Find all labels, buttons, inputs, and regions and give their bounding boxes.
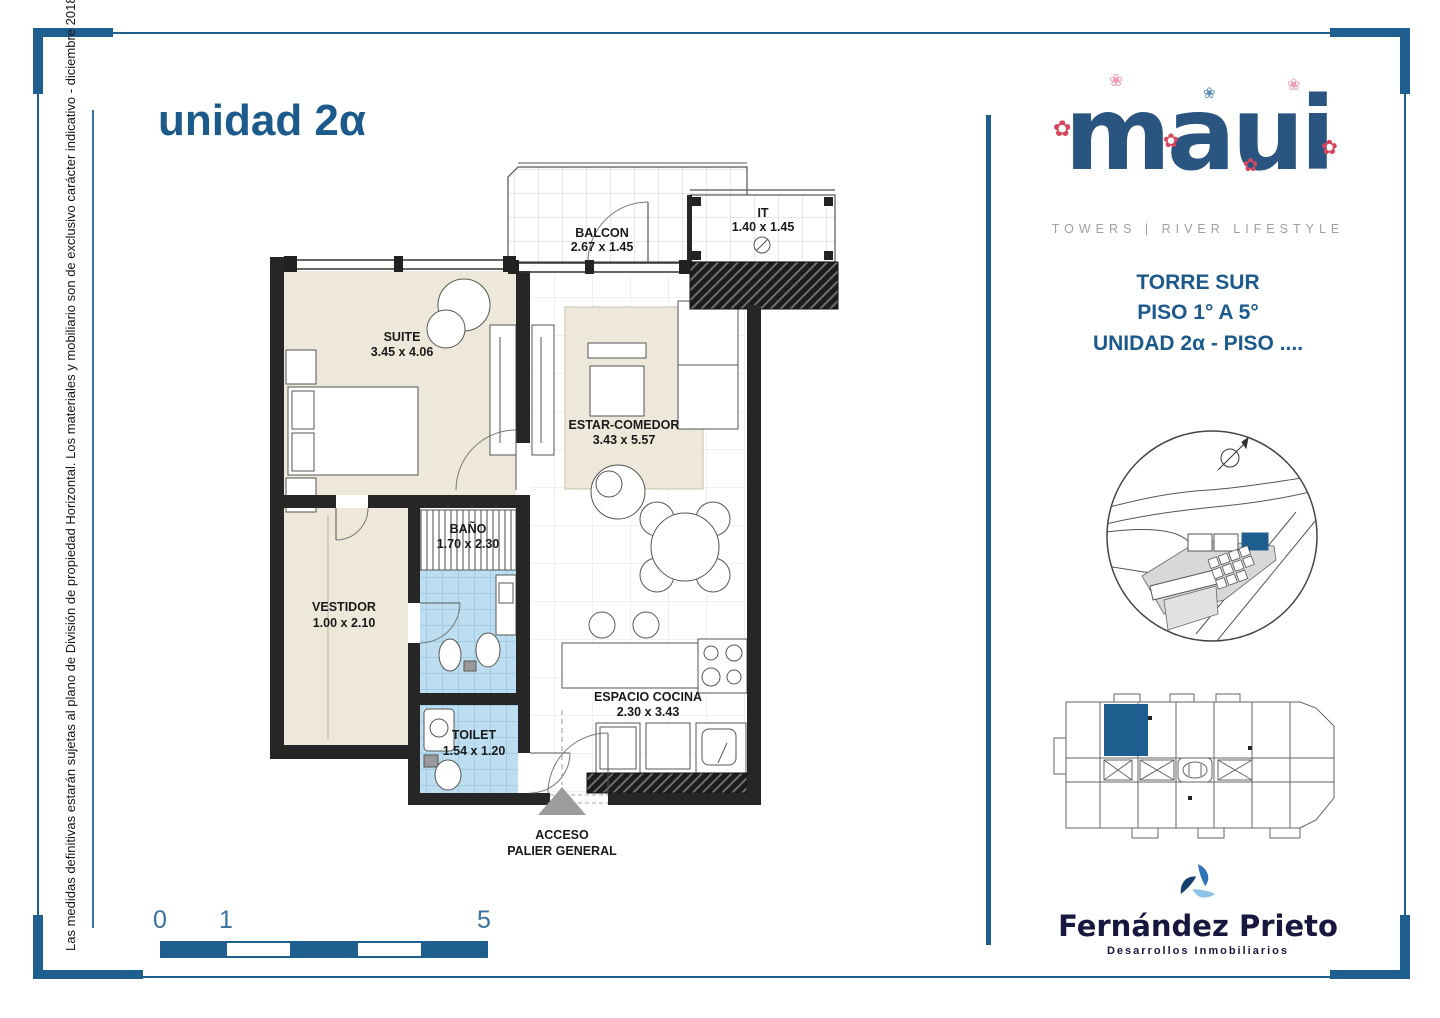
brochure-page: Las medidas definitivas estarán sujetas … [0,0,1440,1018]
scale-label-1: 1 [214,906,238,935]
label-it-dims: 1.40 x 1.45 [732,220,795,234]
wc [476,633,500,667]
label-it: IT [757,206,768,220]
label-cocina-dims: 2.30 x 3.43 [617,705,680,719]
site-location-map [1104,428,1320,644]
label-estar: ESTAR-COMEDOR [569,418,680,432]
label-suite: SUITE [384,330,421,344]
developer-logo: Fernández Prieto Desarrollos Inmobiliari… [991,860,1405,957]
label-balcon-dims: 2.67 x 1.45 [571,240,634,254]
unit-location: TORRE SUR PISO 1° A 5° UNIDAD 2α - PISO … [991,268,1405,359]
label-toilet-dims: 1.54 x 1.20 [443,744,506,758]
label-vestidor: VESTIDOR [312,600,376,614]
maui-wordmark: maui [1065,75,1332,194]
developer-tagline: Desarrollos Inmobiliarios [991,945,1405,957]
wardrobe [490,325,516,455]
service-wall-hatch [587,773,747,793]
maui-logo: ✿ ❀ ✿ ❀ ✿ ❀ ✿ maui [991,60,1405,220]
label-bano-dims: 1.70 x 2.30 [437,537,500,551]
legal-disclaimer: Las medidas definitivas estarán sujetas … [63,91,81,951]
stool [589,612,615,638]
bidet [439,639,461,671]
highlighted-unit [1104,704,1148,756]
nightstand [286,350,316,384]
label-vestidor-dims: 1.00 x 2.10 [313,616,376,630]
label-suite-dims: 3.45 x 4.06 [371,345,434,359]
label-estar-dims: 3.43 x 5.57 [593,433,656,447]
developer-mark-icon [1174,860,1222,908]
sidebar-rule [92,110,94,928]
wc [435,760,461,790]
unit-floor: UNIDAD 2α - PISO .... [991,329,1405,359]
developer-name: Fernández Prieto [991,909,1405,943]
tv-stand [588,343,646,358]
label-palier: PALIER GENERAL [507,844,617,858]
stool [633,612,659,638]
floor-key-plan [1048,686,1352,846]
scale-label-0: 0 [148,906,172,935]
label-toilet: TOILET [452,728,497,742]
maui-tagline: TOWERS | RIVER LIFESTYLE [991,222,1405,236]
pillow [292,433,314,471]
counter-module [646,723,690,769]
info-panel: ✿ ❀ ✿ ❀ ✿ ❀ ✿ maui TOWERS | RIVER LIFEST… [991,60,1405,960]
floor-plan: BALCON 2.67 x 1.45 IT 1.40 x 1.45 SUITE … [250,145,840,885]
scale-label-5: 5 [472,906,496,935]
tower-name: TORRE SUR [991,268,1405,298]
drain-box [464,661,476,671]
tv-unit [590,366,644,416]
kitchen-counter [562,643,698,688]
dining-table [651,513,719,581]
unit-title: unidad 2α [158,96,366,146]
storage-unit [532,325,554,455]
label-balcon: BALCON [575,226,628,240]
floor-range: PISO 1° A 5° [991,298,1405,328]
scale-bar [160,941,488,958]
pillow [292,391,314,429]
label-acceso: ACCESO [535,828,589,842]
label-bano: BAÑO [450,521,487,536]
neighbor-wall-hatch [690,262,838,309]
label-cocina: ESPACIO COCINA [594,690,702,704]
